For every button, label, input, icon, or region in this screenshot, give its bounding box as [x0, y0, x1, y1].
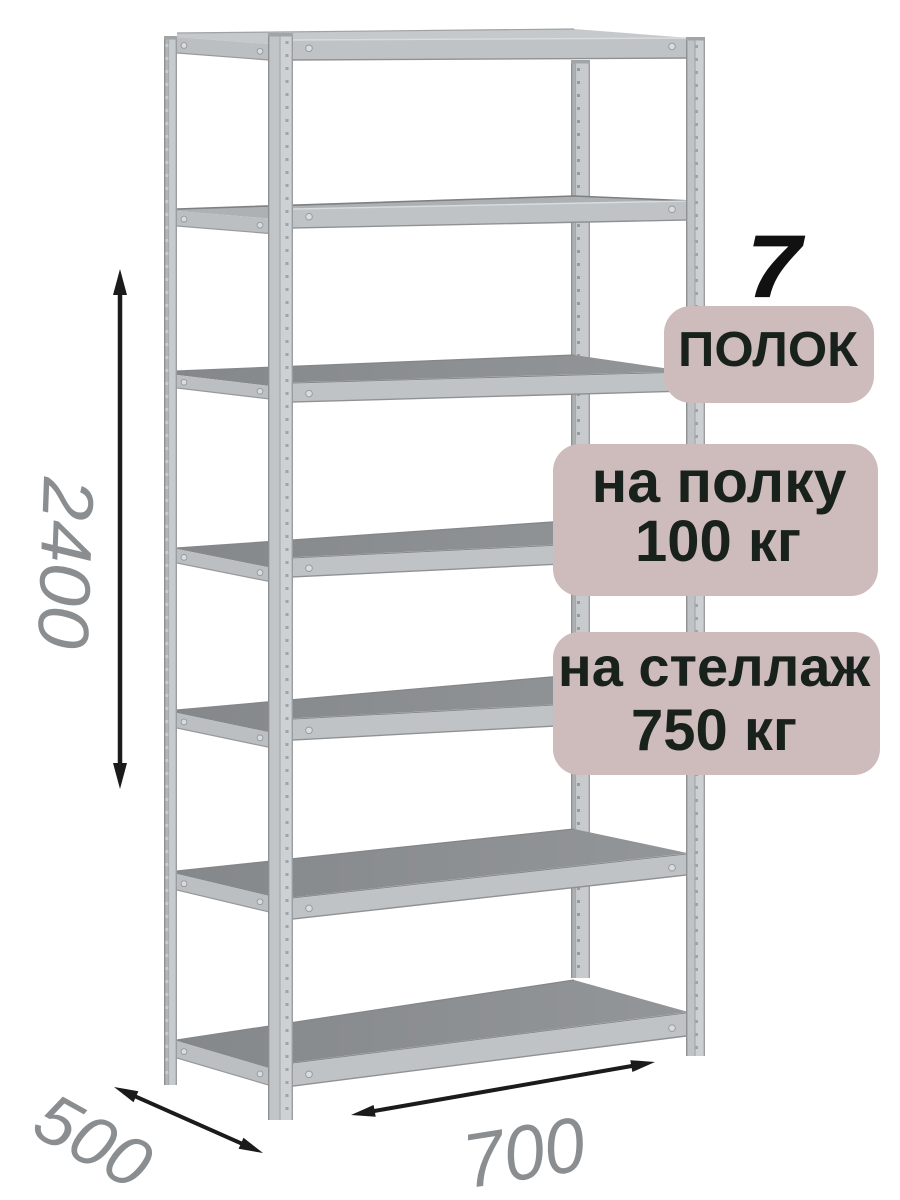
- svg-text:на полку: на полку: [592, 449, 847, 515]
- svg-text:на стеллаж: на стеллаж: [558, 635, 872, 698]
- svg-text:7: 7: [747, 217, 805, 316]
- svg-text:ПОЛОК: ПОЛОК: [678, 323, 858, 377]
- svg-text:100 кг: 100 кг: [635, 509, 801, 574]
- svg-text:2400: 2400: [22, 475, 108, 650]
- svg-text:750 кг: 750 кг: [631, 698, 797, 763]
